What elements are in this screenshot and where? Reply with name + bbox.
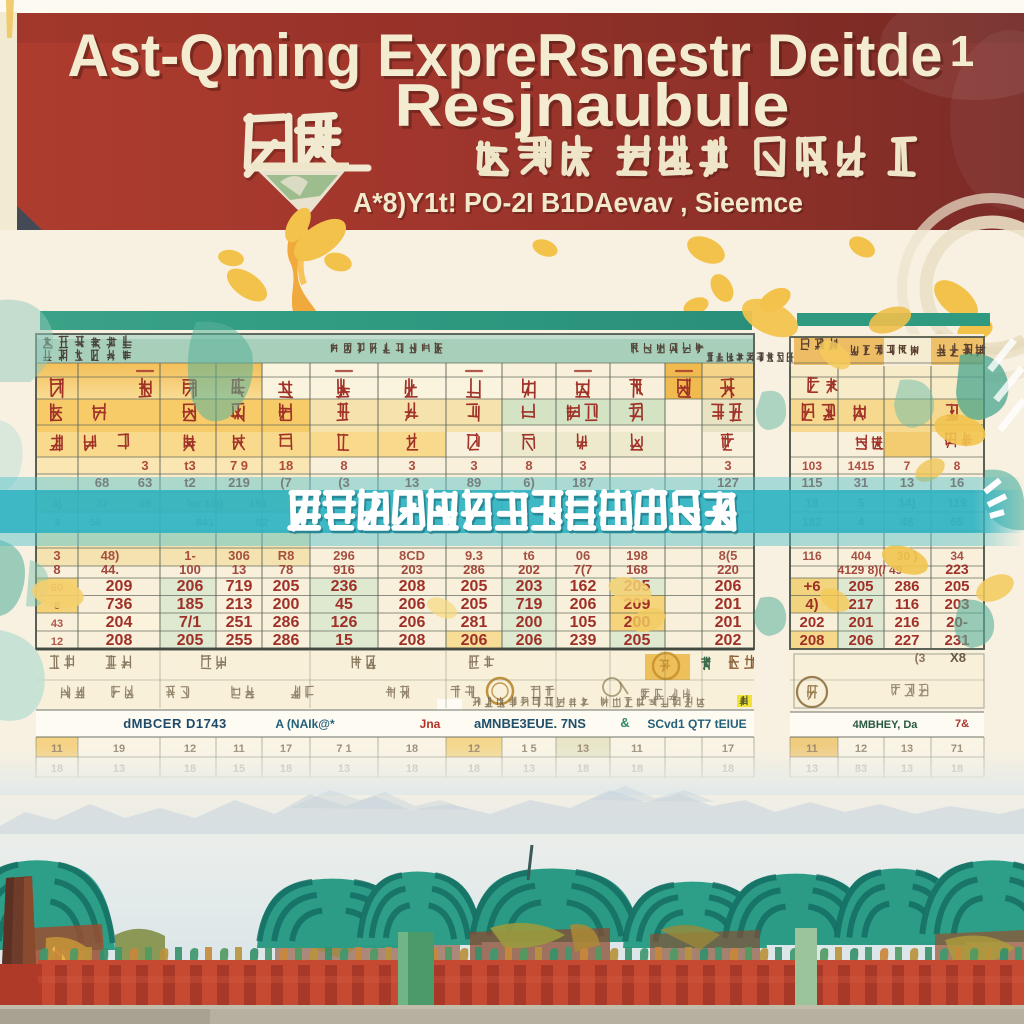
svg-text:116: 116: [802, 549, 822, 563]
svg-text:203: 203: [516, 578, 543, 595]
svg-text:8: 8: [525, 458, 532, 473]
svg-text:404: 404: [851, 549, 871, 563]
svg-text:206: 206: [516, 632, 543, 649]
svg-text:105: 105: [570, 614, 597, 631]
svg-text:213: 213: [226, 596, 253, 613]
svg-text:3: 3: [141, 458, 148, 473]
svg-text:162: 162: [570, 578, 597, 595]
svg-text:12: 12: [51, 636, 63, 648]
svg-text:208: 208: [399, 578, 426, 595]
svg-text:126: 126: [331, 614, 358, 631]
svg-text:13: 13: [232, 562, 246, 577]
svg-text:239: 239: [570, 632, 597, 649]
svg-text:206: 206: [461, 632, 488, 649]
svg-text:209: 209: [106, 578, 133, 595]
svg-text:205: 205: [624, 632, 651, 649]
svg-text:206: 206: [399, 614, 426, 631]
svg-text:296: 296: [333, 548, 355, 563]
svg-text:X8: X8: [950, 650, 966, 665]
svg-text:A*8)Y1t! PO-2I B1DAevav , Siee: A*8)Y1t! PO-2I B1DAevav , Sieemce: [353, 187, 803, 218]
svg-text:201: 201: [715, 614, 742, 631]
svg-text:202: 202: [715, 632, 742, 649]
svg-text:251: 251: [226, 614, 253, 631]
svg-text:44.: 44.: [101, 562, 119, 577]
svg-text:185: 185: [177, 596, 204, 613]
svg-text:719: 719: [226, 578, 253, 595]
svg-text:202: 202: [799, 614, 824, 631]
svg-text:100: 100: [179, 562, 201, 577]
svg-text:281: 281: [461, 614, 488, 631]
svg-text:1-: 1-: [184, 548, 196, 563]
svg-text:48): 48): [101, 548, 120, 563]
svg-text:06: 06: [576, 548, 590, 563]
svg-text:SCvd1 QT7 tEIUE: SCvd1 QT7 tEIUE: [647, 717, 746, 731]
svg-text:200: 200: [516, 614, 543, 631]
svg-text:220: 220: [717, 562, 739, 577]
svg-text:+6: +6: [803, 578, 820, 595]
svg-text:4MBHEY, Da: 4MBHEY, Da: [853, 719, 919, 731]
svg-text:205: 205: [944, 578, 969, 595]
svg-text:Resjnaubule: Resjnaubule: [395, 72, 790, 139]
svg-text:205: 205: [273, 578, 300, 595]
svg-text:286: 286: [273, 632, 300, 649]
svg-text:198: 198: [626, 548, 648, 563]
svg-text:202: 202: [518, 562, 540, 577]
svg-text:8: 8: [53, 562, 60, 577]
svg-text:227: 227: [894, 632, 919, 649]
svg-text:aMNBE3EUE. 7NS: aMNBE3EUE. 7NS: [474, 716, 586, 731]
svg-text:116: 116: [895, 596, 919, 613]
svg-text:45: 45: [335, 596, 353, 613]
svg-text:216: 216: [894, 614, 919, 631]
svg-text:201: 201: [715, 596, 742, 613]
svg-text:916: 916: [333, 562, 355, 577]
svg-text:1: 1: [950, 27, 974, 76]
svg-text:8CD: 8CD: [399, 548, 425, 563]
svg-text:9.3: 9.3: [465, 548, 483, 563]
svg-text:8(5: 8(5: [719, 548, 738, 563]
svg-text:217: 217: [848, 596, 873, 613]
svg-text:7: 7: [904, 459, 911, 473]
svg-text:78: 78: [279, 562, 293, 577]
svg-text:208: 208: [399, 632, 426, 649]
svg-text:8: 8: [340, 458, 347, 473]
svg-text:15: 15: [335, 632, 353, 649]
svg-text:Jna: Jna: [420, 717, 441, 731]
svg-text:223: 223: [945, 561, 969, 577]
svg-text:dMBCER D1743: dMBCER D1743: [123, 716, 227, 731]
svg-text:208: 208: [799, 632, 824, 649]
svg-text:3: 3: [724, 458, 731, 473]
svg-text:208: 208: [106, 632, 133, 649]
svg-text:206: 206: [715, 578, 742, 595]
svg-text:4): 4): [805, 596, 818, 613]
svg-text:A (NAIk@*: A (NAIk@*: [275, 717, 335, 731]
svg-text:8: 8: [954, 459, 961, 473]
svg-text:t3: t3: [184, 458, 196, 473]
svg-text:205: 205: [177, 632, 204, 649]
svg-text:236: 236: [331, 578, 358, 595]
svg-text:201: 201: [848, 614, 873, 631]
svg-text:286: 286: [463, 562, 485, 577]
svg-text:206: 206: [399, 596, 426, 613]
svg-text:205: 205: [461, 596, 488, 613]
svg-text:719: 719: [516, 596, 543, 613]
svg-text:168: 168: [626, 562, 648, 577]
svg-text:1415: 1415: [848, 459, 875, 473]
svg-text:R8: R8: [278, 548, 295, 563]
svg-text:206: 206: [848, 632, 873, 649]
svg-text:43: 43: [51, 618, 63, 630]
svg-text:3: 3: [53, 548, 60, 563]
svg-text:(3: (3: [915, 651, 926, 665]
svg-text:18: 18: [279, 458, 293, 473]
svg-text:206: 206: [570, 596, 597, 613]
svg-text:7&: 7&: [955, 718, 969, 730]
svg-text:286: 286: [894, 578, 919, 595]
svg-text:3: 3: [470, 458, 477, 473]
svg-text:&: &: [620, 715, 629, 730]
svg-text:203: 203: [401, 562, 423, 577]
svg-text:200: 200: [273, 596, 300, 613]
svg-text:3: 3: [579, 458, 586, 473]
svg-text:255: 255: [226, 632, 253, 649]
svg-text:736: 736: [106, 596, 133, 613]
svg-text:7 9: 7 9: [230, 458, 248, 473]
svg-text:205: 205: [848, 578, 873, 595]
svg-text:7(7: 7(7: [574, 562, 593, 577]
svg-text:205: 205: [461, 578, 488, 595]
svg-text:286: 286: [273, 614, 300, 631]
svg-text:204: 204: [106, 614, 133, 631]
svg-text:206: 206: [177, 578, 204, 595]
svg-text:7/1: 7/1: [179, 614, 201, 631]
svg-text:103: 103: [802, 459, 822, 473]
svg-text:t6: t6: [523, 548, 535, 563]
svg-text:3: 3: [408, 458, 415, 473]
svg-text:306: 306: [228, 548, 250, 563]
